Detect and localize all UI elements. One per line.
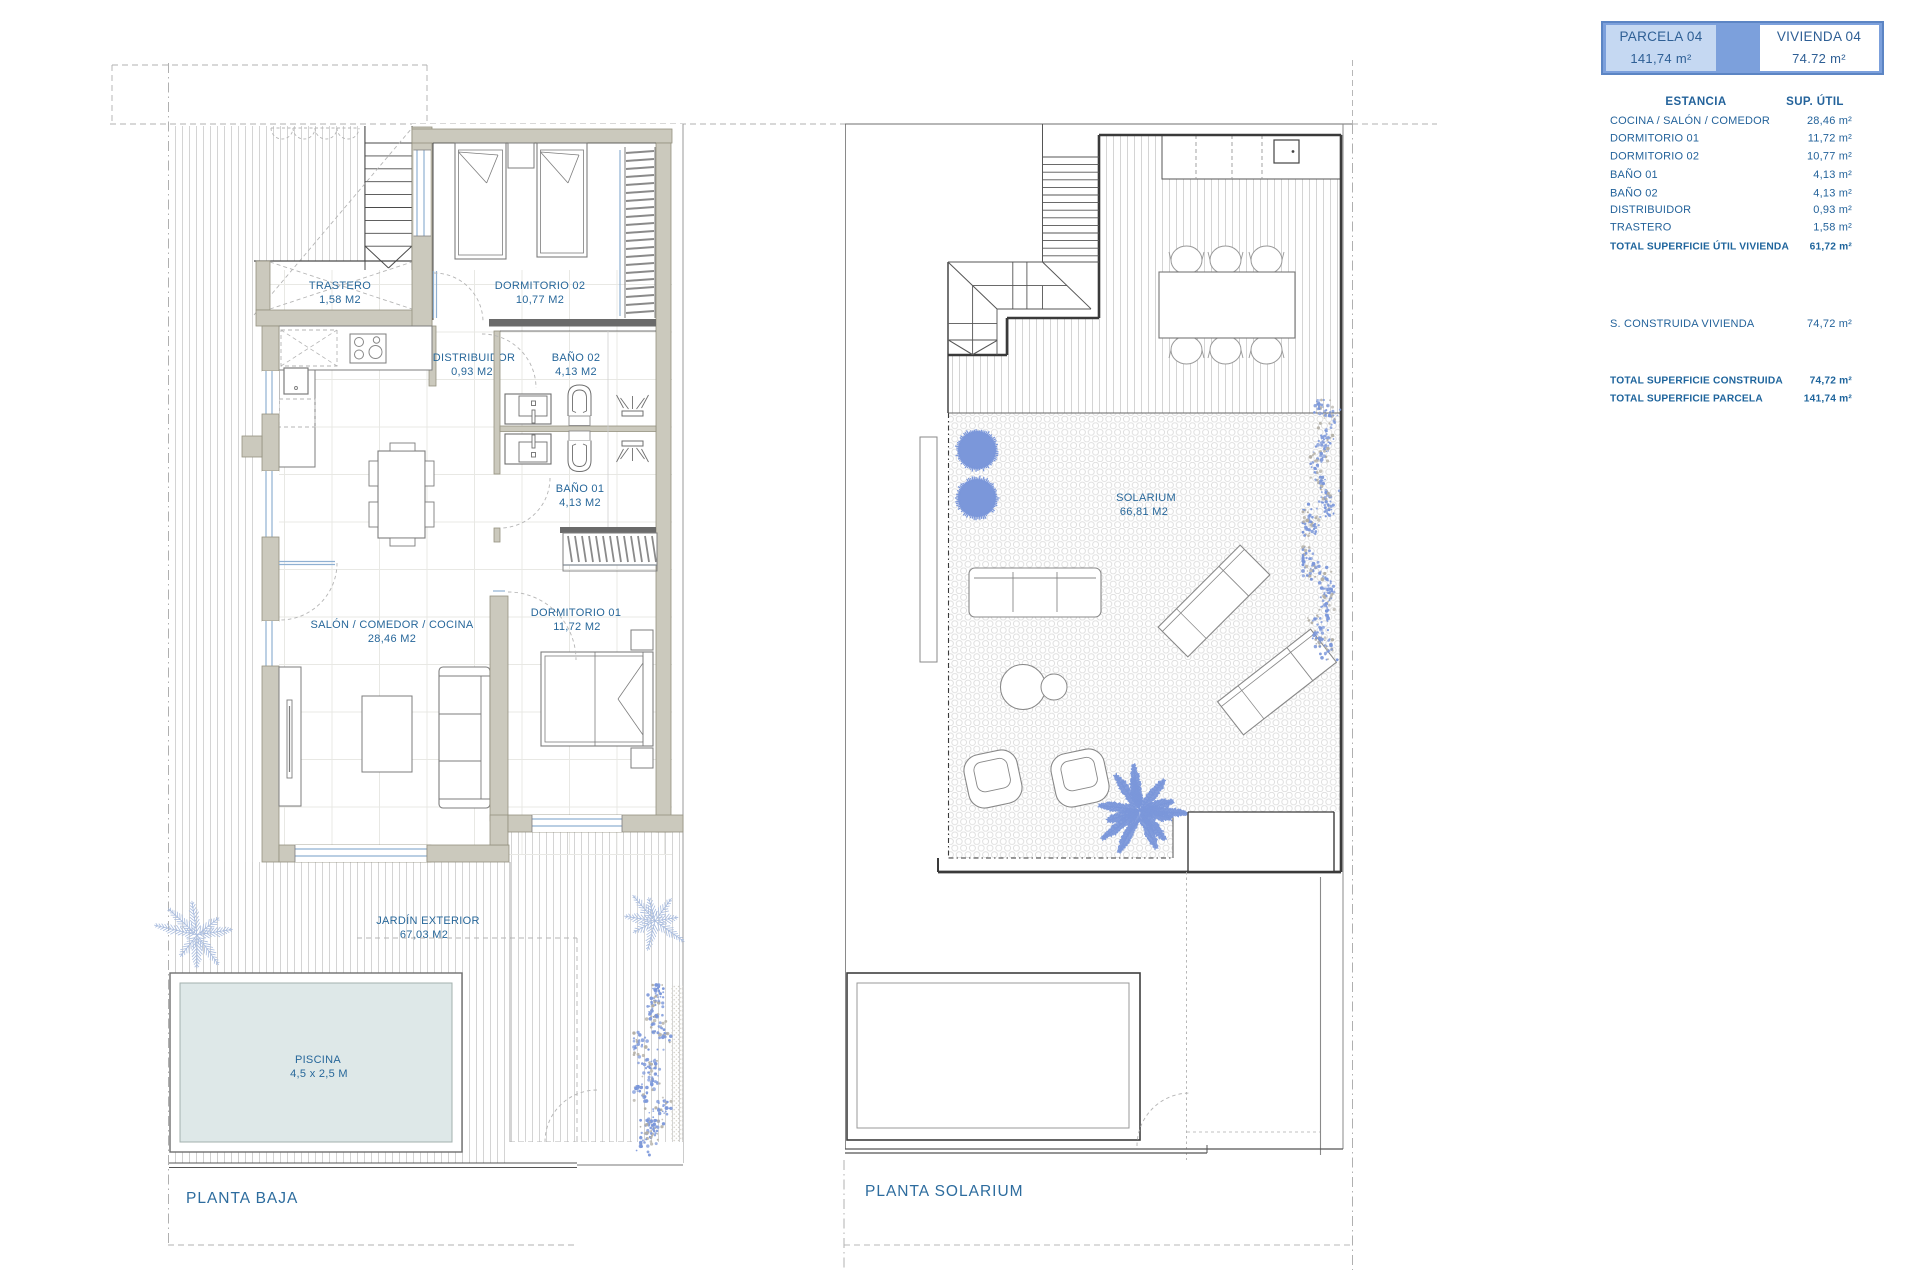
svg-text:DISTRIBUIDOR: DISTRIBUIDOR: [433, 352, 515, 364]
svg-text:141,74 m²: 141,74 m²: [1630, 51, 1692, 66]
svg-text:TOTAL SUPERFICIE CONSTRUIDA: TOTAL SUPERFICIE CONSTRUIDA: [1610, 376, 1783, 387]
svg-text:PARCELA 04: PARCELA 04: [1619, 29, 1702, 44]
svg-text:JARDÍN EXTERIOR: JARDÍN EXTERIOR: [376, 914, 480, 927]
svg-text:S. CONSTRUIDA VIVIENDA: S. CONSTRUIDA VIVIENDA: [1610, 318, 1755, 330]
svg-text:SOLARIUM: SOLARIUM: [1116, 492, 1176, 504]
svg-text:0,93 M2: 0,93 M2: [451, 366, 493, 378]
svg-text:10,77 m²: 10,77 m²: [1807, 151, 1852, 163]
svg-text:1,58 M2: 1,58 M2: [319, 294, 361, 306]
svg-text:BAÑO 02: BAÑO 02: [1610, 187, 1658, 200]
svg-text:TOTAL SUPERFICIE ÚTIL VIVIENDA: TOTAL SUPERFICIE ÚTIL VIVIENDA: [1610, 240, 1789, 253]
svg-text:11,72 M2: 11,72 M2: [553, 621, 600, 633]
svg-text:DISTRIBUIDOR: DISTRIBUIDOR: [1610, 204, 1691, 216]
svg-text:74.72 m²: 74.72 m²: [1792, 51, 1846, 66]
svg-text:BAÑO 02: BAÑO 02: [552, 351, 601, 364]
svg-text:BAÑO 01: BAÑO 01: [1610, 168, 1658, 181]
svg-text:PISCINA: PISCINA: [295, 1054, 341, 1066]
svg-text:4,13 m²: 4,13 m²: [1813, 169, 1852, 181]
svg-text:SALÓN / COMEDOR / COCINA: SALÓN / COMEDOR / COCINA: [310, 618, 473, 631]
svg-text:TRASTERO: TRASTERO: [1610, 222, 1672, 234]
svg-text:66,81 M2: 66,81 M2: [1120, 506, 1168, 518]
svg-text:DORMITORIO 02: DORMITORIO 02: [495, 280, 586, 292]
svg-text:DORMITORIO 01: DORMITORIO 01: [531, 607, 622, 619]
svg-text:ESTANCIA: ESTANCIA: [1665, 96, 1726, 108]
svg-text:67,03 M2: 67,03 M2: [400, 929, 448, 941]
svg-text:VIVIENDA 04: VIVIENDA 04: [1777, 29, 1862, 44]
svg-text:0,93 m²: 0,93 m²: [1813, 204, 1852, 216]
svg-text:74,72 m²: 74,72 m²: [1810, 376, 1853, 387]
svg-text:PLANTA SOLARIUM: PLANTA SOLARIUM: [865, 1183, 1024, 1200]
svg-text:74,72 m²: 74,72 m²: [1807, 318, 1852, 330]
svg-text:TOTAL SUPERFICIE PARCELA: TOTAL SUPERFICIE PARCELA: [1610, 394, 1763, 405]
svg-text:COCINA / SALÓN / COMEDOR: COCINA / SALÓN / COMEDOR: [1610, 114, 1770, 127]
svg-text:BAÑO 01: BAÑO 01: [556, 482, 605, 495]
svg-text:4,13 M2: 4,13 M2: [559, 497, 601, 509]
svg-text:1,58 m²: 1,58 m²: [1813, 222, 1852, 234]
svg-text:141,74 m²: 141,74 m²: [1804, 394, 1853, 405]
svg-text:4,13 m²: 4,13 m²: [1813, 188, 1852, 200]
svg-text:PLANTA BAJA: PLANTA BAJA: [186, 1190, 298, 1207]
svg-text:4,13 M2: 4,13 M2: [555, 366, 597, 378]
svg-text:28,46 M2: 28,46 M2: [368, 633, 416, 645]
svg-text:TRASTERO: TRASTERO: [309, 280, 371, 292]
svg-text:11,72 m²: 11,72 m²: [1808, 133, 1852, 145]
svg-text:SUP. ÚTIL: SUP. ÚTIL: [1786, 95, 1844, 108]
svg-text:DORMITORIO 02: DORMITORIO 02: [1610, 151, 1699, 163]
svg-text:28,46 m²: 28,46 m²: [1807, 115, 1852, 127]
svg-text:4,5 x 2,5 M: 4,5 x 2,5 M: [290, 1068, 348, 1080]
svg-text:DORMITORIO 01: DORMITORIO 01: [1610, 133, 1699, 145]
svg-text:10,77 M2: 10,77 M2: [516, 294, 564, 306]
svg-text:61,72 m²: 61,72 m²: [1810, 242, 1853, 253]
